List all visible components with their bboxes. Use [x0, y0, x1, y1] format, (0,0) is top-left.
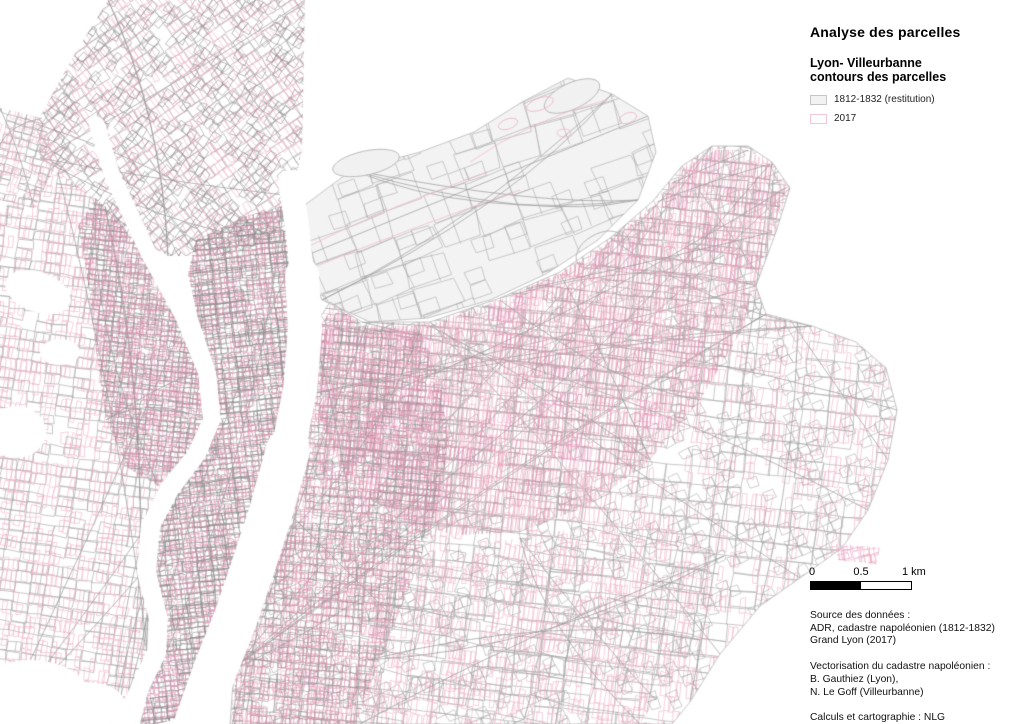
credits: Source des données : ADR, cadastre napol… [810, 597, 995, 724]
legend-items: 1812-1832 (restitution) 2017 [810, 90, 1015, 128]
scalebar-ticks: 0 0.5 1 km [810, 566, 950, 579]
legend-swatch-1812 [810, 95, 827, 105]
scalebar: 0 0.5 1 km [810, 566, 950, 590]
scalebar-bar [810, 581, 912, 590]
map-title: Analyse des parcelles [810, 24, 1015, 40]
credits-line: Source des données : [810, 610, 995, 623]
legend-item-1812: 1812-1832 (restitution) [810, 90, 1015, 109]
scalebar-tick-0: 0 [809, 566, 815, 578]
credits-line: Calculs et cartographie : NLG [810, 712, 995, 724]
credits-line: B. Gauthiez (Lyon), [810, 674, 995, 687]
legend-heading-line2: contours des parcelles [810, 70, 1015, 84]
legend-swatch-2017 [810, 114, 827, 124]
scalebar-tick-05: 0.5 [848, 566, 874, 578]
scalebar-bar-filled-half [811, 582, 861, 589]
credits-line: N. Le Goff (Villeurbanne) [810, 687, 995, 700]
legend-item-2017: 2017 [810, 109, 1015, 128]
legend-label-1812: 1812-1832 (restitution) [834, 94, 935, 105]
legend-panel: Analyse des parcelles Lyon- Villeurbanne… [810, 24, 1015, 128]
legend-heading-line1: Lyon- Villeurbanne [810, 56, 1015, 70]
credits-line: ADR, cadastre napoléonien (1812-1832) [810, 623, 995, 636]
credits-line: Grand Lyon (2017) [810, 635, 995, 648]
page: Analyse des parcelles Lyon- Villeurbanne… [0, 0, 1024, 724]
scalebar-tick-1km: 1 km [902, 566, 926, 578]
credits-line: Vectorisation du cadastre napoléonien : [810, 661, 995, 674]
legend-label-2017: 2017 [834, 113, 856, 124]
legend-heading: Lyon- Villeurbanne contours des parcelle… [810, 56, 1015, 84]
